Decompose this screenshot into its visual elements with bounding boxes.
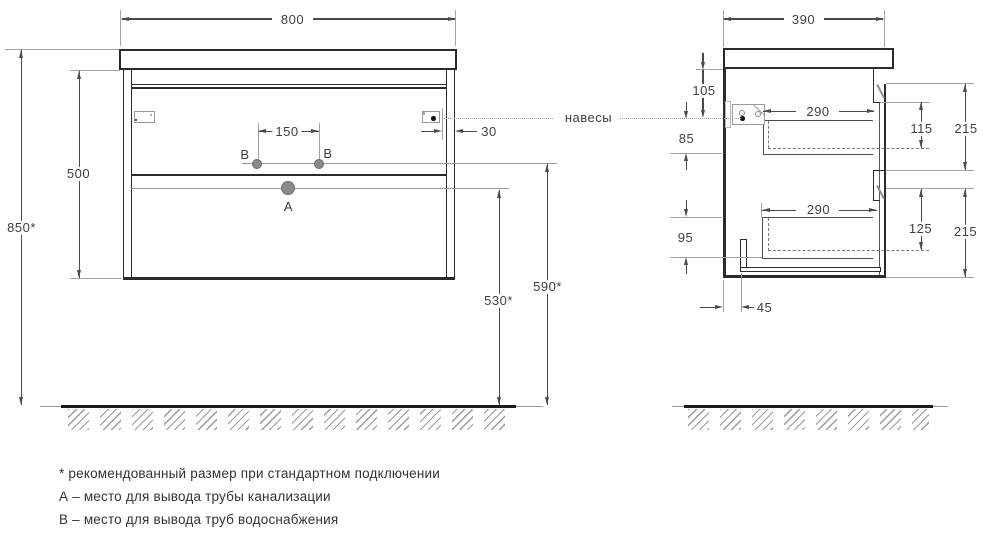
- dimension-line: [702, 53, 703, 62]
- cabinet-right-wall: [446, 70, 455, 280]
- arrow-right-icon: [869, 208, 877, 212]
- water-supply-level-line: [242, 163, 557, 164]
- dim-label-lower-drawer-back: 95: [675, 231, 696, 245]
- dim-label-lower-front-height: 215: [951, 224, 980, 238]
- point-a-label: A: [281, 199, 296, 213]
- extension-line: [884, 10, 885, 47]
- dim-label-hanger-top-offset: 105: [689, 84, 718, 98]
- arrow-down-icon: [963, 162, 967, 170]
- drawer1-top: [763, 120, 873, 121]
- extension-line: [886, 170, 974, 171]
- arrow-down-icon: [77, 270, 81, 278]
- arrow-left-icon: [258, 129, 266, 133]
- dimension-line: [686, 200, 687, 209]
- floor-line-thick: [684, 405, 933, 408]
- point-b-label: B: [237, 147, 252, 161]
- bracket-screw-dot: [431, 116, 436, 121]
- drawer2-bottom: [762, 258, 873, 259]
- dimension-line: [824, 18, 883, 19]
- drain-level-line: [131, 188, 509, 189]
- dimension-line: [686, 102, 687, 111]
- hangers-label: навесы: [562, 110, 615, 124]
- dim-label-depth: 390: [789, 12, 818, 26]
- note-point-b: В – место для вывода труб водоснабжения: [59, 512, 338, 527]
- drawer1-bottom: [763, 154, 873, 155]
- dimension-line: [700, 307, 716, 308]
- drawer2-back: [762, 217, 763, 258]
- arrow-up-icon: [684, 257, 688, 265]
- dim-label-install-height: 850*: [4, 220, 39, 234]
- arrow-down-icon: [545, 397, 549, 405]
- dimension-line: [122, 18, 272, 19]
- dim-label-supply-height: 590*: [530, 279, 565, 293]
- drawer2-hidden-back: [768, 218, 769, 251]
- arrow-right-icon: [715, 305, 723, 309]
- drawer1-hidden-bottom: [768, 148, 929, 149]
- dimension-line: [686, 265, 687, 274]
- note-point-a: А – место для вывода трубы канализации: [59, 489, 331, 504]
- extension-line: [455, 10, 456, 46]
- arrow-down-icon: [963, 269, 967, 277]
- extension-line: [120, 10, 121, 46]
- point-b-marker: [252, 159, 262, 169]
- extension-line: [886, 277, 974, 278]
- arrow-up-icon: [684, 153, 688, 161]
- extension-line: [723, 280, 724, 312]
- extension-line: [723, 10, 724, 47]
- arrow-up-icon: [919, 102, 923, 110]
- arrow-up-icon: [963, 84, 967, 92]
- extension-line: [670, 153, 722, 154]
- dim-label-supply-spacing: 150: [272, 125, 301, 139]
- arrow-left-icon: [121, 17, 129, 21]
- drawer2-top: [762, 217, 873, 218]
- arrow-down-icon: [701, 62, 705, 70]
- arrow-right-icon: [867, 109, 875, 113]
- hangers-callout-line: [444, 118, 553, 119]
- arrow-right-icon: [434, 129, 442, 133]
- arrow-up-icon: [77, 71, 81, 79]
- extension-line: [442, 108, 443, 140]
- hangers-callout-line: [620, 118, 741, 119]
- drawer1-front-bottom: [873, 170, 885, 171]
- front-outer-face: [884, 84, 886, 278]
- arrow-up-icon: [545, 164, 549, 172]
- arrow-right-icon: [311, 129, 319, 133]
- dim-label-upper-front-height: 215: [951, 122, 980, 136]
- dimension-line: [724, 18, 784, 19]
- floor-hatching: [688, 409, 929, 431]
- dim-label-upper-drawer-depth: 290: [803, 104, 832, 118]
- arrow-down-icon: [19, 397, 23, 405]
- extension-line: [886, 188, 974, 189]
- dimension-line: [686, 161, 687, 170]
- front-channel-back: [873, 170, 874, 201]
- front-channel-back: [873, 69, 874, 103]
- extension-line: [886, 83, 974, 84]
- arrow-down-icon: [701, 110, 705, 118]
- drawer-divider-line: [131, 174, 446, 176]
- dim-label-drain-height: 530*: [481, 293, 516, 307]
- dim-label-bracket-offset: 30: [478, 124, 499, 138]
- dim-label-front-width: 800: [278, 12, 307, 26]
- bracket-hole: [739, 110, 745, 116]
- extension-line: [70, 278, 122, 279]
- top-rail-line: [131, 84, 446, 85]
- arrow-down-icon: [684, 111, 688, 119]
- arrow-up-icon: [919, 189, 923, 197]
- arrow-up-icon: [19, 50, 23, 58]
- countertop-side: [723, 48, 894, 69]
- arrow-down-icon: [919, 242, 923, 250]
- arrow-left-icon: [762, 208, 770, 212]
- dim-label-lower-drawer-inner: 125: [906, 221, 935, 235]
- dim-label-bottom-back-offset: 45: [754, 300, 775, 314]
- arrow-down-icon: [919, 140, 923, 148]
- floor-line-thick: [61, 405, 516, 408]
- drawer2-hidden-bottom: [768, 250, 929, 251]
- arrow-right-icon: [876, 17, 884, 21]
- dimension-line: [313, 18, 455, 19]
- cabinet-bottom-side: [723, 275, 885, 278]
- extension-line: [670, 217, 722, 218]
- channel-ledge: [873, 200, 880, 201]
- dim-label-upper-drawer-inner: 115: [907, 121, 935, 135]
- dim-label-lower-drawer-depth: 290: [804, 203, 833, 217]
- cabinet-bottom: [123, 277, 456, 280]
- arrow-down-icon: [684, 209, 688, 217]
- note-asterisk: * рекомендованный размер при стандартном…: [59, 466, 440, 481]
- installation-drawing: 800 30 150: [0, 0, 986, 536]
- bottom-support-horizontal: [740, 267, 881, 272]
- point-a-marker: [281, 181, 295, 195]
- top-rail-line: [131, 87, 446, 88]
- arrow-up-icon: [497, 190, 501, 198]
- hanger-bracket-side-back: [725, 101, 732, 128]
- dim-label-cabinet-height: 500: [64, 166, 93, 180]
- drawer1-back: [763, 120, 764, 154]
- dimension-line: [462, 131, 477, 132]
- floor-hatching: [68, 409, 512, 431]
- handle-chamfer: [876, 84, 884, 98]
- dim-label-hanger-drop: 85: [676, 131, 697, 145]
- arrow-up-icon: [963, 189, 967, 197]
- countertop-front: [119, 49, 457, 70]
- arrow-right-icon: [448, 17, 456, 21]
- arrow-down-icon: [497, 397, 501, 405]
- arrow-left-icon: [723, 17, 731, 21]
- arrow-left-icon: [763, 109, 771, 113]
- handle-chamfer: [876, 185, 884, 199]
- drawer1-hidden-back: [768, 121, 769, 148]
- point-b-label: B: [320, 147, 335, 161]
